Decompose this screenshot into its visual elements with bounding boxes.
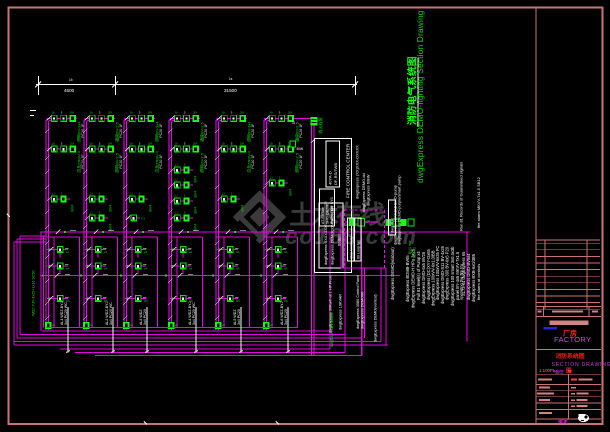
svg-text:消火栓泵: 消火栓泵 (317, 117, 324, 134)
svg-text:60 Loop tan: 60 Loop tan (357, 240, 361, 259)
svg-text:1b: 1b (222, 141, 226, 145)
svg-text:1b: 1b (175, 111, 179, 115)
svg-text:a2: a2 (104, 250, 108, 254)
svg-text:3x4 PC20 WC: 3x4 PC20 WC (109, 302, 113, 325)
svg-text:PC20 1F: PC20 1F (119, 154, 123, 169)
svg-text:3x4 PC20: 3x4 PC20 (143, 309, 147, 325)
svg-text:H6: H6 (284, 299, 288, 303)
svg-text:SHG-DB70K: SHG-DB70K (325, 203, 329, 224)
svg-text:1b: 1b (130, 111, 134, 115)
svg-text:BV4: BV4 (194, 191, 198, 198)
svg-text:BV4 mw: BV4 mw (408, 240, 412, 254)
svg-text:BV4: BV4 (289, 189, 293, 196)
svg-text:2M: 2M (240, 141, 245, 145)
svg-text:dwgExpress XXXXXXX: dwgExpress XXXXXXX (324, 225, 328, 265)
svg-text:11: 11 (292, 121, 296, 125)
svg-text:L1: L1 (52, 191, 56, 195)
svg-text:a4: a4 (284, 266, 288, 270)
svg-text:H6: H6 (144, 299, 148, 303)
svg-text:3x4 PC20: 3x4 PC20 (284, 309, 288, 325)
svg-text:dwg 4LP: dwg 4LP (391, 218, 395, 233)
svg-text:1b: 1b (175, 141, 179, 145)
svg-text:BV4: BV4 (194, 207, 198, 214)
svg-text:H6: H6 (66, 299, 70, 303)
svg-text:6B5 kz: 6B5 kz (413, 247, 417, 258)
svg-text:L1: L1 (90, 210, 94, 214)
svg-text:K3: K3 (142, 217, 146, 221)
svg-text:L1: L1 (270, 175, 274, 179)
svg-text:FACTORY: FACTORY (554, 335, 591, 344)
svg-text:dwgExpress 3080 Control Panel: dwgExpress 3080 Control Panel (356, 275, 360, 329)
svg-text:PC20 1F: PC20 1F (204, 154, 208, 169)
svg-text:审定: 审定 (558, 418, 568, 425)
svg-text:dwgExpress 10KVAR: dwgExpress 10KVAR (339, 294, 343, 330)
svg-text:3x4 PC20: 3x4 PC20 (237, 309, 241, 325)
svg-text:50W: 50W (297, 147, 304, 151)
svg-text:a2: a2 (236, 250, 240, 254)
svg-text:1b: 1b (90, 141, 94, 145)
svg-text:L1: L1 (222, 191, 226, 195)
svg-text:BV4: BV4 (149, 205, 153, 212)
svg-text:2M: 2M (288, 111, 293, 115)
svg-text:a2: a2 (284, 250, 288, 254)
svg-text:40YA-D: 40YA-D (328, 171, 333, 185)
svg-text:1b: 1b (69, 78, 73, 82)
svg-text:BV4: BV4 (194, 176, 198, 183)
svg-text:2M: 2M (70, 141, 75, 145)
svg-text:消防系统图: 消防系统图 (556, 352, 585, 360)
svg-text:1s: 1s (229, 77, 233, 81)
svg-text:PC20 1F: PC20 1F (119, 123, 123, 138)
svg-text:2M: 2M (193, 141, 198, 145)
svg-text:dwgExpress DEMO(vertical): dwgExpress DEMO(vertical) (374, 294, 378, 342)
svg-text:PC20 1F: PC20 1F (299, 154, 303, 169)
svg-text:SB2 Amr3mW: SB2 Amr3mW (350, 236, 354, 259)
svg-text:a4: a4 (144, 266, 148, 270)
svg-text:dwgExpress 300 BV-6x5 P20: dwgExpress 300 BV-6x5 P20 (445, 246, 450, 300)
svg-text:BV4: BV4 (71, 205, 75, 212)
svg-text:a4: a4 (104, 266, 108, 270)
svg-text:SECTION DRAWING: SECTION DRAWING (552, 362, 610, 368)
svg-text:2M: 2M (108, 141, 113, 145)
svg-text:2M: 2M (240, 111, 245, 115)
svg-text:BV4: BV4 (109, 224, 113, 231)
svg-text:2M: 2M (108, 111, 113, 115)
svg-text:L1: L1 (175, 162, 179, 166)
svg-text:a4: a4 (66, 266, 70, 270)
svg-text:1b: 1b (52, 141, 56, 145)
svg-text:operating the fire Pu: operating the fire Pu (459, 264, 464, 300)
svg-text:fire alarm MKVV-7x1.5 SB12: fire alarm MKVV-7x1.5 SB12 (476, 176, 481, 228)
svg-text:dwgExpress DEMO(w/about): dwgExpress DEMO(w/about) (390, 247, 395, 300)
svg-text:FIRE CONTROL CENTER: FIRE CONTROL CENTER (346, 143, 351, 198)
svg-text:PC20 1F: PC20 1F (159, 123, 163, 138)
svg-text:dwgExpress DEMOCONTROLLER: dwgExpress DEMOCONTROLLER (331, 206, 335, 265)
svg-text:a2: a2 (189, 250, 193, 254)
svg-text:PC20 1F: PC20 1F (251, 154, 255, 169)
svg-text:1b: 1b (52, 111, 56, 115)
svg-text:a2: a2 (144, 250, 148, 254)
svg-text:1b: 1b (222, 111, 226, 115)
svg-text:fire alarm at controls: fire alarm at controls (476, 264, 481, 300)
svg-text:2M: 2M (148, 141, 153, 145)
svg-text:31500: 31500 (224, 88, 237, 93)
svg-text:a4: a4 (236, 266, 240, 270)
svg-text:a2: a2 (66, 250, 70, 254)
svg-text:dwgExpress DEMO-dd: dwgExpress DEMO-dd (362, 173, 366, 212)
svg-text:1b: 1b (130, 141, 134, 145)
svg-text:PC20 1F: PC20 1F (299, 123, 303, 138)
svg-text:2M: 2M (193, 111, 198, 115)
svg-text:L1: L1 (175, 193, 179, 197)
svg-text:PC20 1F: PC20 1F (159, 154, 163, 169)
svg-text:L1: L1 (90, 191, 94, 195)
svg-text:1b: 1b (270, 141, 274, 145)
svg-text:DF-RS/7WB: DF-RS/7WB (333, 163, 338, 185)
svg-text:dwgExpress 100MW: dwgExpress 100MW (330, 312, 334, 347)
svg-text:4500: 4500 (64, 88, 75, 93)
svg-text:3x4 PC20 WC: 3x4 PC20 WC (192, 302, 196, 325)
svg-text:BV4: BV4 (109, 205, 113, 212)
svg-text:dwgExpress DEMO-fighting Secti: dwgExpress DEMO-fighting Section Drawing (415, 10, 425, 183)
svg-text:2M: 2M (70, 111, 75, 115)
svg-text:1b: 1b (90, 111, 94, 115)
svg-text:BV4: BV4 (194, 224, 198, 231)
svg-text:AT-65/7kw: AT-65/7kw (321, 207, 325, 224)
svg-text:Run 81 Records of Guaranteed s: Run 81 Records of Guaranteed signals (459, 162, 464, 231)
svg-text:2M: 2M (148, 111, 153, 115)
svg-text:PC20 1F: PC20 1F (204, 123, 208, 138)
svg-text:dwgExpress 60kW: dwgExpress 60kW (367, 174, 371, 206)
svg-text:dwgExpress DEMO88: dwgExpress DEMO88 (361, 292, 365, 329)
svg-text:会签: 会签 (555, 368, 564, 375)
svg-text:L1: L1 (175, 177, 179, 181)
svg-text:a4: a4 (189, 266, 193, 270)
svg-text:3x4 PC20 WC: 3x4 PC20 WC (64, 302, 68, 325)
svg-text:dwgExpress (XX)XXX-DXXXX: dwgExpress (XX)XXX-DXXXX (355, 145, 360, 199)
svg-text:dwgExpress BDMB-BV65: dwgExpress BDMB-BV65 (405, 255, 410, 302)
svg-text:BV4: BV4 (241, 205, 245, 212)
svg-text:dwgExpress DEMO-purple/smart p: dwgExpress DEMO-purple/smart pump (397, 175, 402, 245)
svg-text:PC20 1F: PC20 1F (251, 123, 255, 138)
svg-text:WDZ-YJY-4x25+1x16 SC50: WDZ-YJY-4x25+1x16 SC50 (32, 270, 36, 316)
svg-text:H6: H6 (236, 299, 240, 303)
svg-text:L1: L1 (130, 191, 134, 195)
svg-text:1b: 1b (270, 111, 274, 115)
svg-text:L1: L1 (175, 210, 179, 214)
